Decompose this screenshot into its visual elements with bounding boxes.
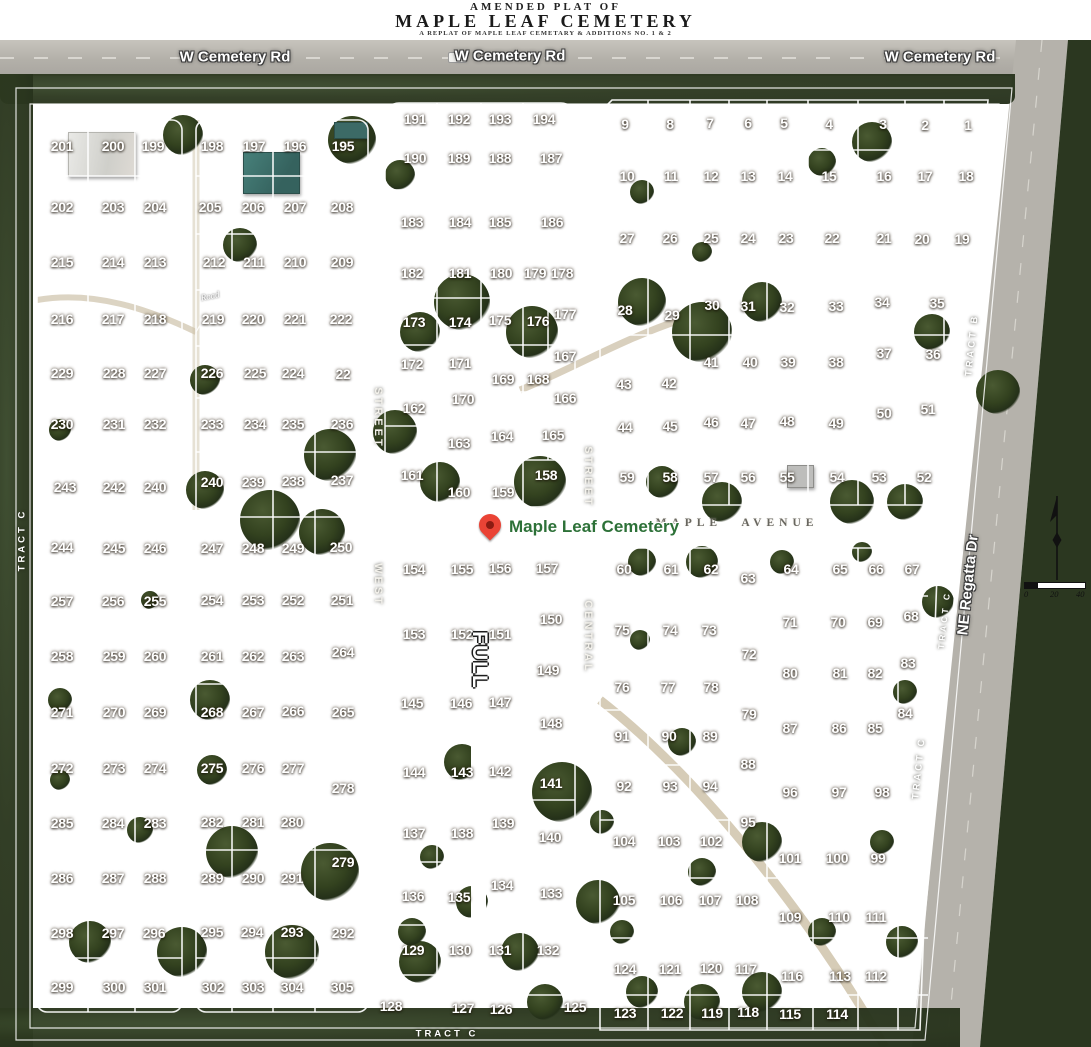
plot-label: 79 [742,706,757,722]
plot-label: 142 [489,763,511,779]
plot-label: 12 [704,168,719,184]
plot-label: 183 [401,214,423,230]
plot-label: 185 [489,214,511,230]
plot-label: 287 [102,870,124,886]
plot-label: 24 [741,230,756,246]
plot-label: 279 [332,854,354,870]
plot-label: 36 [926,346,941,362]
plot-label: 6 [744,115,752,131]
plot-label: 138 [451,825,473,841]
plot-label: 31 [741,298,756,314]
plot-label: 203 [102,199,124,215]
plot-label: 8 [666,116,674,132]
plot-label: 143 [451,764,473,780]
plot-label: 281 [242,814,264,830]
plot-label: 10 [620,168,635,184]
plot-label: 73 [702,622,717,638]
plot-label: 61 [664,561,679,577]
plot-label: 304 [281,979,303,995]
plot-label: 81 [833,665,848,681]
full-street-band [471,552,486,962]
plot-label: 5 [780,115,788,131]
north-arrow-diamond [1053,532,1062,548]
plot-label: 293 [281,924,303,940]
plot-label: 272 [51,760,73,776]
plot-label: 146 [450,695,472,711]
plot-label: 166 [554,390,576,406]
plot-label: 288 [144,870,166,886]
plot-label: 1 [964,117,972,133]
plot-label: 95 [741,814,756,830]
plot-label: 219 [202,311,224,327]
plot-label: 53 [872,469,887,485]
plot-label: 297 [102,925,124,941]
plot-label: 140 [539,829,561,845]
plot-label: 225 [244,365,266,381]
plot-label: 109 [779,909,801,925]
plot-label: 221 [284,311,306,327]
plot-label: 209 [331,254,353,270]
plot-label: 20 [915,231,930,247]
plot-label: 4 [825,116,833,132]
plot-label: 43 [617,376,632,392]
plot-label: 296 [143,925,165,941]
plot-label: 124 [614,961,636,977]
plot-label: 278 [332,780,354,796]
plot-label: 78 [704,679,719,695]
plot-label: 46 [704,414,719,430]
scale-bar: 0 20 40 [1024,582,1088,599]
plot-label: 93 [663,778,678,794]
plot-label: 228 [103,365,125,381]
plot-label: 153 [403,626,425,642]
plot-label: 70 [831,614,846,630]
plot-label: 11 [664,168,678,184]
plot-label: 58 [663,469,678,485]
plot-label: 132 [537,942,559,958]
plot-label: 215 [51,254,73,270]
plot-label: 192 [448,111,470,127]
plot-label: 131 [489,942,511,958]
plot-label: 18 [959,168,974,184]
plot-label: 106 [660,892,682,908]
plot-label: 168 [527,371,549,387]
plot-label: 273 [103,760,125,776]
plot-label: 144 [403,764,425,780]
north-arrow-head [1050,496,1057,522]
plot-label: 182 [401,265,423,281]
plot-label: 55 [780,469,795,485]
plot-label: 66 [869,561,884,577]
plot-label: 217 [102,311,124,327]
plot-label: 170 [452,391,474,407]
plot-label: 180 [490,265,512,281]
plot-label: 251 [331,592,353,608]
plot-label: 139 [492,815,514,831]
plot-label: 214 [102,254,124,270]
plot-label: 207 [284,199,306,215]
plot-label: 63 [741,570,756,586]
plot-label: 301 [144,979,166,995]
plot-label: 230 [51,416,73,432]
plot-label: 59 [620,469,635,485]
plot-label: 2 [921,117,929,133]
plot-label: 42 [662,375,677,391]
plot-label: 226 [201,365,223,381]
plot-label: 97 [832,784,847,800]
plot-label: 303 [242,979,264,995]
plot-label: 158 [535,467,557,483]
plot-label: 115 [779,1006,801,1022]
plot-label: 212 [203,254,225,270]
plot-label: 51 [921,401,936,417]
plot-label: 200 [102,138,124,154]
plot-label: 3 [879,116,887,132]
street-label-full: FULL [467,631,491,689]
plot-label: 179 [524,265,546,281]
plot-label: 13 [741,168,756,184]
plot-label: 263 [282,648,304,664]
plot-label: 40 [743,354,758,370]
plot-label: 261 [201,648,223,664]
plot-label: 248 [242,540,264,556]
plot-label: 252 [282,592,304,608]
plot-label: 289 [201,870,223,886]
scale-bar-ticks: 0 20 40 [1024,589,1088,599]
plot-label: 52 [917,469,932,485]
plot-label: 227 [144,365,166,381]
plot-label: 80 [783,665,798,681]
plot-label: 120 [700,960,722,976]
plot-label: 35 [930,295,945,311]
plot-label: 62 [704,561,719,577]
plot-label: 96 [783,784,798,800]
plot-label: 91 [615,728,630,744]
plot-label: 26 [663,230,678,246]
plot-label: 157 [536,560,558,576]
plot-label: 89 [703,728,718,744]
plot-label: 90 [662,728,677,744]
plot-label: 102 [700,833,722,849]
plot-label: 197 [243,138,265,154]
plot-label: 54 [830,469,845,485]
plot-label: 100 [826,850,848,866]
plat-page: AMENDED PLAT OF MAPLE LEAF CEMETERY A RE… [0,0,1091,1047]
plot-label: 108 [736,892,758,908]
plot-label: 277 [282,760,304,776]
plot-label: 122 [661,1005,683,1021]
plot-label: 282 [201,814,223,830]
page-title: MAPLE LEAF CEMETERY [0,13,1091,30]
plot-label: 229 [51,365,73,381]
plot-label: 148 [540,715,562,731]
plot-label: 239 [242,474,264,490]
plot-label: 283 [144,815,166,831]
plot-label: 291 [281,870,303,886]
plot-label: 92 [617,778,632,794]
plot-label: 222 [330,311,352,327]
scale-tick-20: 20 [1050,589,1059,599]
plot-label: 257 [51,593,73,609]
plot-label: 83 [901,655,916,671]
plot-label: 177 [554,306,576,322]
plot-label: 267 [242,704,264,720]
plot-label: 147 [489,694,511,710]
plot-label: 17 [918,168,933,184]
plot-label: 112 [865,968,887,984]
road-label-w-cemetery-1: W Cemetery Rd [180,49,291,66]
plot-label: 235 [282,416,304,432]
plat-inner-boundary [30,104,999,1028]
plot-label: 82 [868,665,883,681]
plot-label: 133 [540,885,562,901]
plot-label: 201 [51,138,73,154]
plot-label: 94 [703,778,718,794]
plot-label: 84 [898,705,913,721]
plot-label: 195 [332,138,354,154]
plot-label: 103 [658,833,680,849]
plot-label: 135 [448,889,470,905]
plot-label: 72 [742,646,757,662]
plot-label: 202 [51,199,73,215]
plot-label: 305 [331,979,353,995]
plot-label: 56 [741,469,756,485]
plot-label: 22 [336,366,351,382]
plot-label: 44 [618,419,633,435]
plot-label: 298 [51,925,73,941]
street-label-maple-avenue: MAPLE AVENUE [656,517,819,529]
plot-label: 193 [489,111,511,127]
plot-label: 155 [451,561,473,577]
plot-label: 253 [242,592,264,608]
plot-label: 213 [144,254,166,270]
plot-label: 160 [448,484,470,500]
plot-label: 254 [201,592,223,608]
plot-label: 270 [103,704,125,720]
plot-label: 165 [542,427,564,443]
plot-label: 128 [380,998,402,1014]
plot-label: 176 [527,313,549,329]
title-block: AMENDED PLAT OF MAPLE LEAF CEMETERY A RE… [0,0,1091,40]
tract-label-bottom-c: TRACT C [416,1029,479,1040]
plot-label: 163 [448,435,470,451]
plot-label: 299 [51,979,73,995]
plot-label: 127 [452,1000,474,1016]
plot-label: 290 [242,870,264,886]
plot-label: 130 [449,942,471,958]
plot-label: 65 [833,561,848,577]
plot-label: 16 [877,168,892,184]
plot-label: 167 [554,348,576,364]
plot-label: 161 [401,467,423,483]
plot-label: 134 [491,877,513,893]
plot-label: 259 [103,648,125,664]
plot-label: 121 [659,961,681,977]
plot-label: 149 [537,662,559,678]
plot-label: 260 [144,648,166,664]
plot-label: 238 [282,473,304,489]
plot-label: 64 [784,561,799,577]
plot-label: 123 [614,1005,636,1021]
plot-label: 268 [201,704,223,720]
plot-label: 175 [489,312,511,328]
plot-label: 266 [282,703,304,719]
plot-label: 9 [621,116,629,132]
plot-label: 87 [783,720,798,736]
plot-label: 292 [332,925,354,941]
plot-label: 178 [551,265,573,281]
plot-label: 265 [332,704,354,720]
plot-label: 249 [282,540,304,556]
plot-label: 50 [877,405,892,421]
plot-label: 119 [701,1005,723,1021]
plot-label: 206 [242,199,264,215]
road-label-w-cemetery-3: W Cemetery Rd [885,49,996,66]
plot-label: 216 [51,311,73,327]
plot-label: 60 [617,561,632,577]
plot-label: 274 [144,760,166,776]
plot-label: 189 [448,150,470,166]
plot-label: 126 [490,1001,512,1017]
plot-label: 258 [51,648,73,664]
plot-label: 169 [492,371,514,387]
plot-label: 154 [403,561,425,577]
plot-label: 218 [144,311,166,327]
plot-label: 15 [822,168,837,184]
plot-label: 186 [541,214,563,230]
street-label-west-street: STREET [372,387,384,448]
plot-label: 39 [781,354,796,370]
plot-label: 125 [564,999,586,1015]
plot-label: 145 [401,695,423,711]
plot-label: 23 [779,230,794,246]
title-subtitle: A REPLAT OF MAPLE LEAF CEMETARY & ADDITI… [0,30,1091,37]
plot-label: 30 [705,297,720,313]
plot-label: 245 [103,540,125,556]
plot-label: 159 [492,484,514,500]
scale-tick-40: 40 [1076,589,1085,599]
plot-label: 14 [778,168,793,184]
plot-label: 184 [449,214,471,230]
plot-label: 240 [201,474,223,490]
plot-label: 264 [332,644,354,660]
north-arrow [1040,488,1076,588]
plot-label: 191 [404,111,426,127]
plot-label: 27 [620,230,635,246]
plot-label: 194 [533,111,555,127]
plot-label: 246 [144,540,166,556]
plot-label: 232 [144,416,166,432]
plot-label: 255 [144,593,166,609]
plot-label: 99 [871,850,886,866]
street-label-west: WEST [372,563,384,607]
street-label-central-street: STREET [582,446,594,507]
plat-outer-boundary [16,88,1012,1040]
plot-label: 110 [828,909,850,925]
street-label-central: CENTRAL [582,600,594,674]
plot-label: 67 [905,561,920,577]
plot-label: 295 [201,924,223,940]
plot-label: 294 [241,924,263,940]
plot-label: 86 [832,720,847,736]
plot-label: 174 [449,314,471,330]
plot-label: 85 [868,720,883,736]
plot-label: 118 [737,1004,759,1020]
poi-label: Maple Leaf Cemetery [509,517,679,537]
plot-label: 247 [201,540,223,556]
plot-label: 22 [825,230,840,246]
plot-label: 34 [875,294,890,310]
plot-label: 75 [615,622,630,638]
plot-label: 286 [51,870,73,886]
plot-label: 98 [875,784,890,800]
plot-label: 302 [202,979,224,995]
plot-label: 7 [706,115,714,131]
plot-label: 37 [877,345,892,361]
plot-label: 32 [780,299,795,315]
plot-label: 41 [704,354,719,370]
plot-label: 220 [242,311,264,327]
plot-label: 262 [242,648,264,664]
plot-label: 136 [402,888,424,904]
plot-label: 76 [615,679,630,695]
plot-label: 88 [741,756,756,772]
plot-label: 156 [489,560,511,576]
plot-label: 71 [783,614,798,630]
plot-label: 104 [613,833,635,849]
plot-label: 173 [403,314,425,330]
plot-label: 256 [102,593,124,609]
plot-label: 181 [449,265,471,281]
plot-label: 68 [904,608,919,624]
plot-label: 231 [103,416,125,432]
plot-label: 74 [663,622,678,638]
plot-label: 137 [403,825,425,841]
plot-label: 244 [51,539,73,555]
plot-label: 187 [540,150,562,166]
plot-label: 101 [779,850,801,866]
plot-label: 28 [618,302,633,318]
plot-label: 150 [540,611,562,627]
plot-label: 116 [781,968,803,984]
plot-label: 224 [282,365,304,381]
tract-label-left-c: TRACT C [17,509,28,572]
plot-label: 188 [489,150,511,166]
plot-label: 38 [829,354,844,370]
plot-label: 19 [955,231,970,247]
plot-label: 164 [491,428,513,444]
plot-label: 190 [404,150,426,166]
plot-label: 208 [331,199,353,215]
plot-label: 129 [402,942,424,958]
plot-label: 171 [449,355,471,371]
plot-label: 111 [866,909,887,925]
plot-label: 77 [661,679,676,695]
plot-label: 49 [829,415,844,431]
plot-label: 107 [699,892,721,908]
plot-label: 45 [663,418,678,434]
plot-label: 33 [829,298,844,314]
plot-label: 57 [704,469,719,485]
plot-label: 172 [401,356,423,372]
plot-label: 162 [403,400,425,416]
plot-label: 237 [331,472,353,488]
map-canvas: 2012001991981971961952022032042052062072… [0,40,1091,1047]
plot-label: 280 [281,814,303,830]
plot-label: 276 [242,760,264,776]
plot-label: 151 [489,626,511,642]
plot-label: 69 [868,614,883,630]
